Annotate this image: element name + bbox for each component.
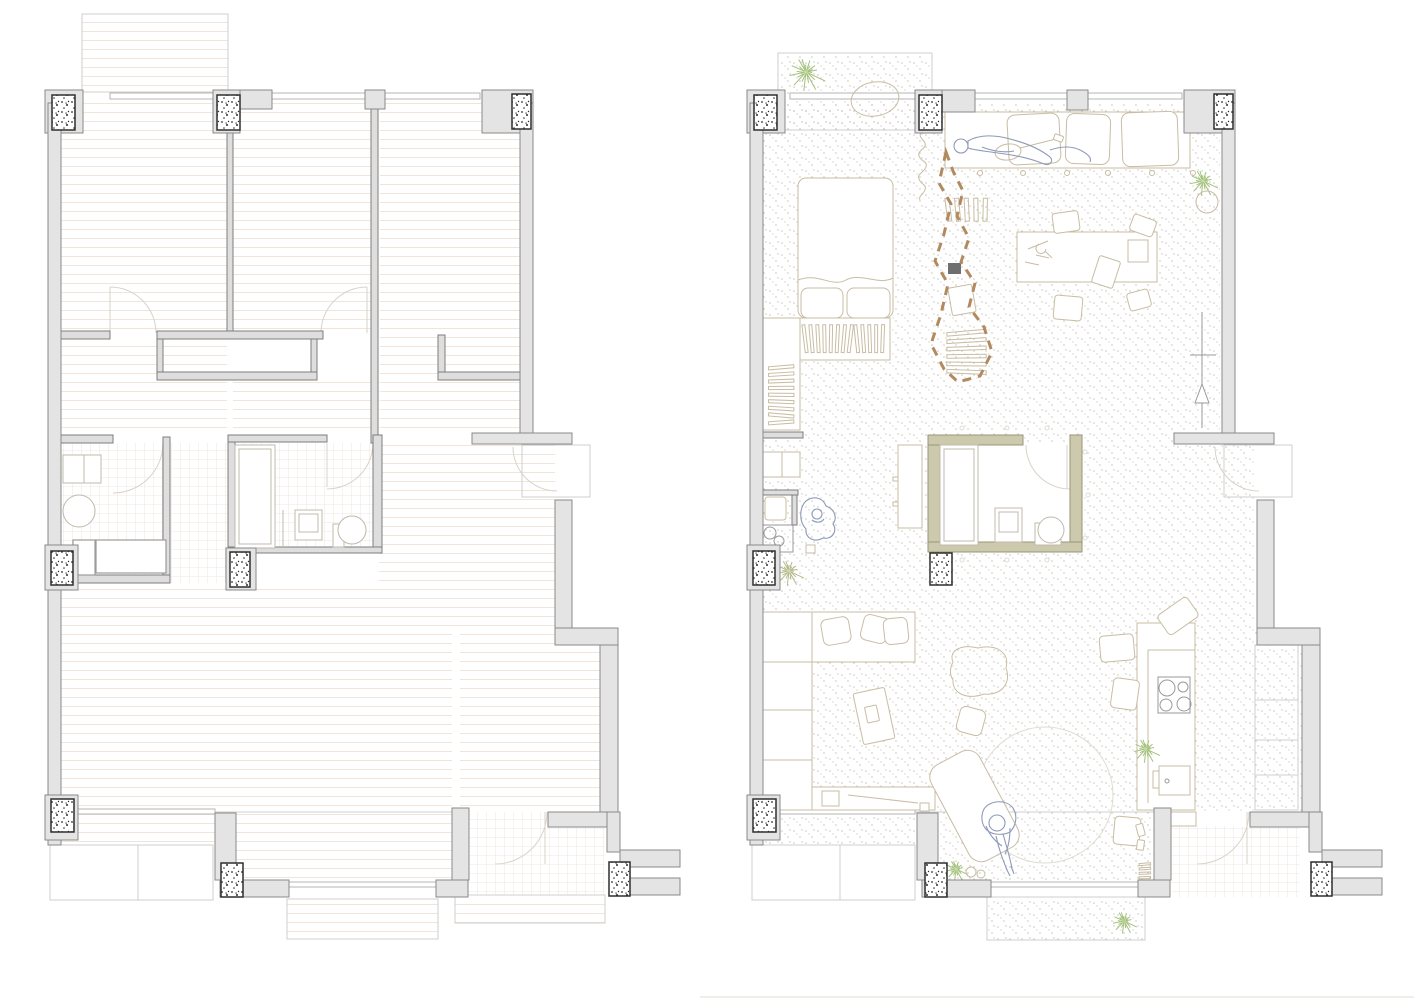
exterior-wall: [600, 645, 618, 812]
exterior-wall: [750, 103, 763, 845]
window: [289, 882, 436, 887]
floor-hatch: [287, 899, 438, 939]
kitchenette-counter: [763, 452, 782, 477]
partition-wall: [61, 435, 113, 443]
plant-leaf: [1126, 921, 1128, 922]
column-texture: [230, 552, 250, 587]
bath-wall: [1070, 435, 1082, 552]
partition-wall: [373, 435, 382, 550]
column-texture: [1214, 94, 1233, 129]
sofa-frame: [920, 803, 929, 811]
cushion: [883, 617, 910, 645]
entry-item: [1171, 812, 1196, 826]
exterior-wall: [48, 103, 61, 845]
exterior-wall: [1222, 103, 1235, 433]
loft-dark-box: [948, 263, 961, 274]
lounge-rug: [864, 705, 879, 723]
sofa-frame: [822, 791, 839, 806]
column-texture: [609, 862, 630, 896]
column-texture: [512, 94, 531, 129]
floor-plan-after-island-group: [1137, 623, 1195, 810]
column-texture: [930, 553, 952, 585]
exterior-wall: [555, 628, 618, 645]
kitchenette-counter: [898, 445, 922, 528]
floor-plans-canvas: [0, 0, 1414, 1000]
column-texture: [753, 799, 776, 832]
exterior-wall: [1309, 812, 1322, 852]
bed: [801, 288, 843, 318]
floor-plan-before: [45, 14, 680, 939]
partition-wall: [792, 495, 797, 525]
exterior-wall: [436, 880, 468, 897]
desk: [1128, 240, 1148, 262]
column-texture: [221, 863, 243, 897]
partition-wall: [228, 435, 235, 553]
bath-fixture: [235, 445, 275, 548]
floor-plan-before-kitchen-cabinet-group: [73, 540, 166, 575]
floor-plan-after: [700, 53, 1414, 997]
plant-leaf: [958, 869, 960, 870]
island: [1159, 766, 1190, 795]
cushion: [820, 616, 852, 646]
partition-wall: [760, 490, 798, 495]
plant-leaf: [957, 871, 958, 876]
window: [61, 809, 215, 814]
fixture-circle: [338, 516, 366, 544]
island-chair: [1110, 677, 1140, 710]
kitchenette-counter: [893, 477, 898, 481]
exterior-wall: [548, 812, 607, 827]
window: [110, 93, 213, 99]
window: [1088, 93, 1182, 99]
exterior-wall: [452, 808, 469, 880]
island: [1153, 771, 1159, 788]
exterior-wall: [520, 103, 533, 433]
exterior-wall: [240, 90, 272, 109]
desk-chair: [1052, 210, 1081, 233]
shower: [940, 445, 978, 545]
column-texture: [217, 95, 240, 130]
floor-plan-after-desk-group: [1017, 232, 1157, 282]
bed: [847, 288, 890, 318]
exterior-wall: [1154, 808, 1171, 880]
exterior-wall: [607, 812, 620, 852]
basin: [1038, 517, 1064, 543]
kitchenette-counter: [893, 502, 898, 506]
kitchenette-counter: [806, 545, 815, 553]
floor-tile: [1171, 826, 1300, 897]
balcony-outline: [752, 845, 915, 900]
floor-plan-sheet: [0, 0, 1414, 1000]
exterior-wall: [472, 433, 572, 444]
floor-hatch: [82, 14, 228, 92]
cushion: [1065, 113, 1111, 165]
bath-wall: [928, 435, 1023, 445]
exterior-wall: [1250, 812, 1309, 827]
bath-fixture: [63, 455, 101, 483]
floor-hatch: [61, 585, 215, 845]
kitchen-cabinet: [96, 540, 166, 573]
exterior-wall: [1174, 433, 1274, 444]
exterior-wall: [1067, 90, 1088, 110]
partition-wall: [157, 331, 323, 339]
bath-wall: [928, 435, 940, 552]
column-texture: [1311, 862, 1332, 896]
exterior-wall: [1257, 628, 1320, 645]
column-texture: [52, 95, 75, 130]
column-texture: [925, 863, 947, 897]
window: [991, 882, 1138, 887]
floor-plan-after-entry-item-group: [1171, 812, 1196, 826]
floor-hatch: [215, 585, 452, 880]
floor-plan-after-basin-group: [1038, 517, 1064, 543]
exterior-wall: [630, 878, 680, 895]
window: [975, 93, 1067, 99]
exterior-wall: [1302, 645, 1320, 812]
exterior-wall: [1332, 878, 1382, 895]
exterior-wall: [365, 90, 385, 109]
column-texture: [754, 95, 777, 130]
window: [385, 93, 480, 99]
exterior-wall: [1138, 880, 1170, 897]
floor-plan-after-loft-dark-box-group: [948, 263, 961, 274]
partition-wall: [228, 435, 327, 442]
floor-hatch: [61, 103, 227, 330]
floor-plan-after-shower-group: [940, 445, 978, 545]
cushion: [1121, 111, 1179, 167]
fixture-circle: [63, 495, 95, 527]
floor-plan-after-fridge-group: [765, 497, 786, 520]
column-texture: [753, 551, 775, 585]
floor-hatch: [61, 339, 227, 435]
island-chair: [1099, 634, 1135, 663]
partition-wall: [438, 372, 521, 380]
exterior-wall: [942, 90, 975, 112]
exterior-wall: [555, 500, 572, 628]
partition-wall: [227, 108, 233, 333]
column-texture: [51, 551, 73, 585]
floor-hatch: [455, 897, 605, 923]
balcony-outline: [50, 845, 213, 900]
floor-hatch: [233, 380, 379, 435]
entry-slipper: [1136, 840, 1144, 851]
desk-chair: [1053, 295, 1083, 321]
kitchenette-counter: [782, 452, 800, 477]
floor-hatch: [233, 103, 371, 330]
exterior-wall: [1257, 500, 1274, 628]
floor-hatch: [460, 628, 600, 808]
floor-hatch: [380, 103, 520, 433]
partition-wall: [157, 372, 317, 380]
fridge: [765, 497, 786, 520]
floor-dots: [763, 812, 915, 845]
partition-wall: [371, 103, 378, 443]
partition-wall: [762, 432, 803, 438]
plant-leaf: [1125, 923, 1126, 928]
partition-wall: [61, 331, 110, 339]
window: [272, 93, 365, 99]
column-texture: [919, 95, 942, 130]
floor-plan-after-floor-tile-group: [1171, 826, 1300, 897]
sofa-frame: [762, 612, 812, 810]
column-texture: [51, 799, 74, 832]
floor-plan-after-bed-group: [798, 178, 893, 318]
